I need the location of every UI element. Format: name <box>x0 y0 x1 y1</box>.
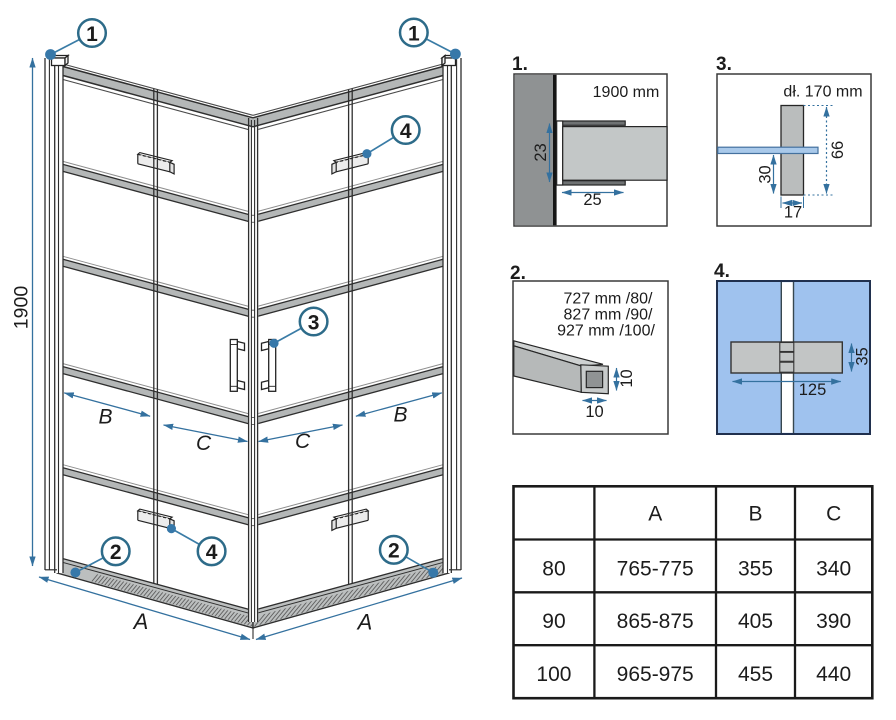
svg-text:1.: 1. <box>512 54 528 75</box>
svg-text:765-775: 765-775 <box>617 557 694 580</box>
svg-text:66: 66 <box>829 141 847 159</box>
svg-text:A: A <box>648 502 662 525</box>
svg-text:927 mm /100/: 927 mm /100/ <box>557 323 655 340</box>
svg-text:B: B <box>98 405 112 428</box>
svg-text:827 mm /90/: 827 mm /90/ <box>564 307 653 324</box>
svg-text:17: 17 <box>784 204 802 222</box>
svg-text:100: 100 <box>536 663 571 686</box>
svg-text:4.: 4. <box>714 261 730 282</box>
svg-text:4: 4 <box>400 120 412 143</box>
svg-text:1900 mm: 1900 mm <box>593 84 660 101</box>
svg-text:25: 25 <box>583 191 601 209</box>
svg-text:455: 455 <box>738 663 773 686</box>
svg-text:3: 3 <box>308 311 320 334</box>
svg-text:B: B <box>748 502 762 525</box>
svg-text:1: 1 <box>408 22 420 45</box>
svg-text:125: 125 <box>799 381 827 399</box>
svg-text:440: 440 <box>816 663 851 686</box>
svg-text:B: B <box>393 403 407 426</box>
svg-text:4: 4 <box>206 541 218 564</box>
svg-text:340: 340 <box>816 557 851 580</box>
svg-text:A: A <box>356 610 373 635</box>
svg-text:23: 23 <box>532 143 550 161</box>
svg-text:10: 10 <box>618 369 636 387</box>
svg-text:2: 2 <box>110 541 122 564</box>
svg-text:C: C <box>196 432 212 455</box>
svg-text:1: 1 <box>86 23 98 46</box>
svg-text:80: 80 <box>542 557 565 580</box>
svg-text:355: 355 <box>738 557 773 580</box>
svg-text:727 mm /80/: 727 mm /80/ <box>564 291 653 308</box>
svg-text:2: 2 <box>388 540 400 563</box>
svg-text:C: C <box>826 502 841 525</box>
svg-text:405: 405 <box>738 610 773 633</box>
svg-text:90: 90 <box>542 610 565 633</box>
svg-text:10: 10 <box>585 403 603 421</box>
svg-text:1900: 1900 <box>10 286 32 330</box>
svg-text:A: A <box>132 609 149 634</box>
svg-text:C: C <box>295 430 311 453</box>
svg-text:35: 35 <box>853 347 871 365</box>
svg-text:865-875: 865-875 <box>617 610 694 633</box>
svg-text:30: 30 <box>756 165 774 183</box>
svg-text:3.: 3. <box>716 54 732 75</box>
svg-text:965-975: 965-975 <box>617 663 694 686</box>
svg-text:390: 390 <box>816 610 851 633</box>
svg-text:dł. 170 mm: dł. 170 mm <box>783 84 862 101</box>
